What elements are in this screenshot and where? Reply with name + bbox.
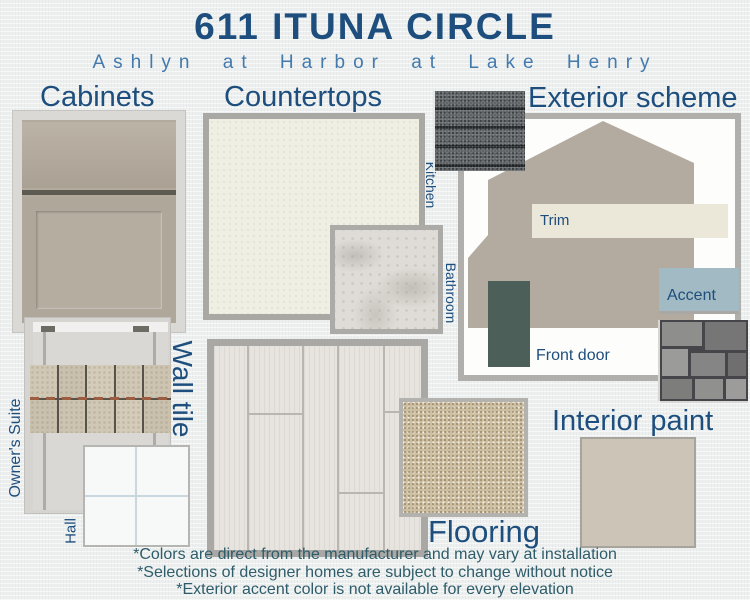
cabinet-door-panel (36, 211, 162, 309)
disclaimer-line: *Colors are direct from the manufacturer… (0, 546, 750, 564)
plank-seam (247, 346, 249, 550)
plank-seam (383, 346, 385, 550)
plank-seam (302, 346, 304, 550)
interior-paint-heading: Interior paint (552, 405, 713, 438)
wood-flooring-swatch (214, 346, 421, 550)
accent-tile (144, 365, 171, 398)
page-subtitle: Ashlyn at Harbor at Lake Henry (0, 52, 750, 74)
tile-notch (133, 326, 149, 332)
interior-paint-swatch (580, 437, 696, 548)
stone-swatch (660, 320, 748, 401)
front-door-label: Front door (536, 347, 610, 365)
accent-tile (30, 365, 57, 398)
plank-seam (337, 346, 339, 550)
plank-joint (337, 492, 383, 494)
bathroom-countertop-swatch (330, 225, 443, 334)
disclaimer-block: *Colors are direct from the manufacturer… (0, 546, 750, 599)
accent-tile (59, 365, 86, 398)
exterior-scheme-heading: Exterior scheme (528, 82, 738, 115)
cabinet-swatch-frame (13, 111, 185, 332)
accent-swatch: Accent (659, 268, 739, 314)
cabinet-drawer-front (22, 122, 176, 188)
flooring-heading: Flooring (428, 514, 540, 550)
page-title: 611 ITUNA CIRCLE (0, 6, 750, 48)
accent-tile (87, 365, 114, 398)
carpet-swatch (399, 398, 528, 517)
cabinet-door-swatch (22, 120, 176, 323)
disclaimer-line: *Exterior accent color is not available … (0, 581, 750, 599)
accent-tile (116, 400, 143, 433)
accent-tile (30, 400, 57, 433)
trim-swatch: Trim (532, 204, 728, 238)
trim-label: Trim (540, 212, 569, 229)
accent-tile (87, 400, 114, 433)
accent-tile (59, 400, 86, 433)
accent-label: Accent (667, 287, 716, 305)
disclaimer-line: *Selections of designer homes are subjec… (0, 564, 750, 582)
hall-tile-swatch (83, 445, 190, 547)
hall-tile-grout (85, 495, 188, 497)
cabinet-drawer-gap (22, 190, 176, 195)
stone-texture (660, 320, 748, 401)
plank-joint (247, 413, 302, 415)
accent-dash-line (30, 397, 171, 400)
flooring-swatch-frame (207, 339, 428, 557)
countertops-heading: Countertops (224, 81, 382, 114)
design-board: 611 ITUNA CIRCLE Ashlyn at Harbor at Lak… (0, 0, 750, 600)
front-door-swatch (488, 281, 530, 367)
accent-tile (144, 400, 171, 433)
accent-tile (116, 365, 143, 398)
cabinet-shaker-door (22, 197, 176, 323)
cabinets-heading: Cabinets (40, 81, 154, 114)
roof-shingle-swatch (435, 91, 525, 171)
